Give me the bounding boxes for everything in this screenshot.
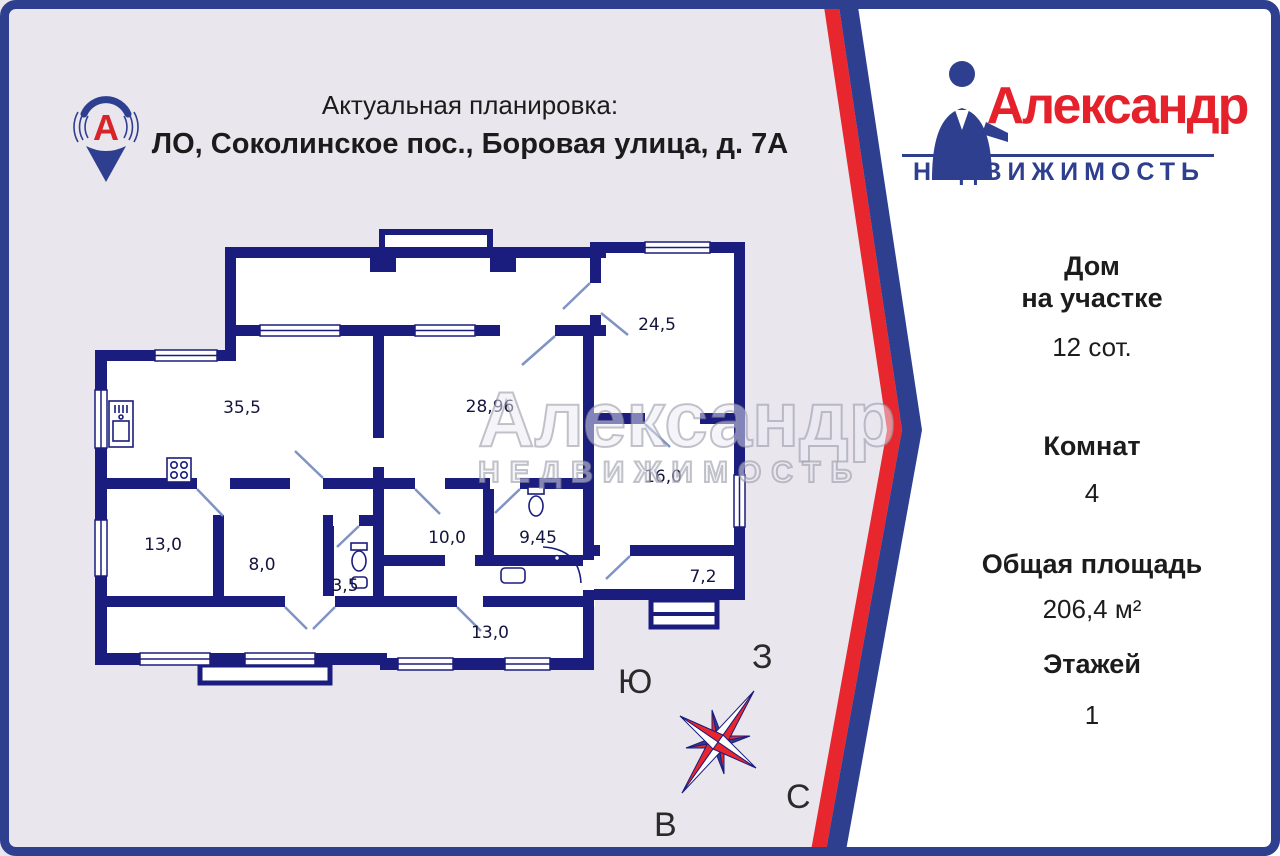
compass-east-label: В	[654, 806, 677, 845]
corridor-13-0-label: 13,0	[471, 623, 509, 643]
wc-3-5-label: 3,5	[331, 576, 358, 596]
header-subtitle: Актуальная планировка:	[150, 90, 790, 121]
room-10-0-label: 10,0	[428, 528, 466, 548]
brand-underline	[902, 154, 1214, 157]
panel-value-rooms: 4	[932, 478, 1252, 509]
room-35-5-label: 35,5	[223, 398, 261, 418]
header: Актуальная планировка: ЛО, Соколинское п…	[150, 90, 790, 161]
panel-label-rooms: Комнат	[932, 430, 1252, 462]
hall-7-2-label: 7,2	[689, 567, 716, 587]
room-13-0-left-label: 13,0	[144, 535, 182, 555]
flyer-canvas: Актуальная планировка: ЛО, Соколинское п…	[0, 0, 1280, 856]
compass-west-label: З	[752, 638, 773, 677]
panel-label-floors: Этажей	[932, 648, 1252, 680]
panel-label-house: Дом на участке	[932, 250, 1252, 315]
brand-tagline: НЕДВИЖИМОСТЬ	[900, 158, 1218, 187]
room-24-5-label: 24,5	[638, 315, 676, 335]
pin-point	[86, 146, 126, 182]
compass-south-label: Ю	[618, 663, 652, 702]
room-28-96-label: 28,96	[466, 397, 515, 417]
room-8-0-label: 8,0	[248, 555, 275, 575]
panel-value-floors: 1	[932, 700, 1252, 731]
panel-value-lot: 12 сот.	[932, 332, 1252, 363]
brand-pin-logo: А	[58, 82, 154, 194]
floor-plan: 35,5 28,96 24,5 16,0 13,0 8,0 3,5 10,0 9…	[85, 225, 775, 715]
compass-rose-icon	[640, 664, 796, 820]
bathroom-9-45-label: 9,45	[519, 528, 557, 548]
pin-letter: А	[93, 107, 119, 148]
panel-value-area: 206,4 м²	[932, 594, 1252, 625]
compass-north-label: С	[786, 778, 811, 817]
header-address: ЛО, Соколинское пос., Боровая улица, д. …	[150, 128, 790, 161]
panel-label-area: Общая площадь	[932, 548, 1252, 580]
floor-plan-footprint	[95, 232, 745, 683]
room-16-0-label: 16,0	[644, 467, 682, 487]
brand-name: Александр	[982, 80, 1252, 132]
